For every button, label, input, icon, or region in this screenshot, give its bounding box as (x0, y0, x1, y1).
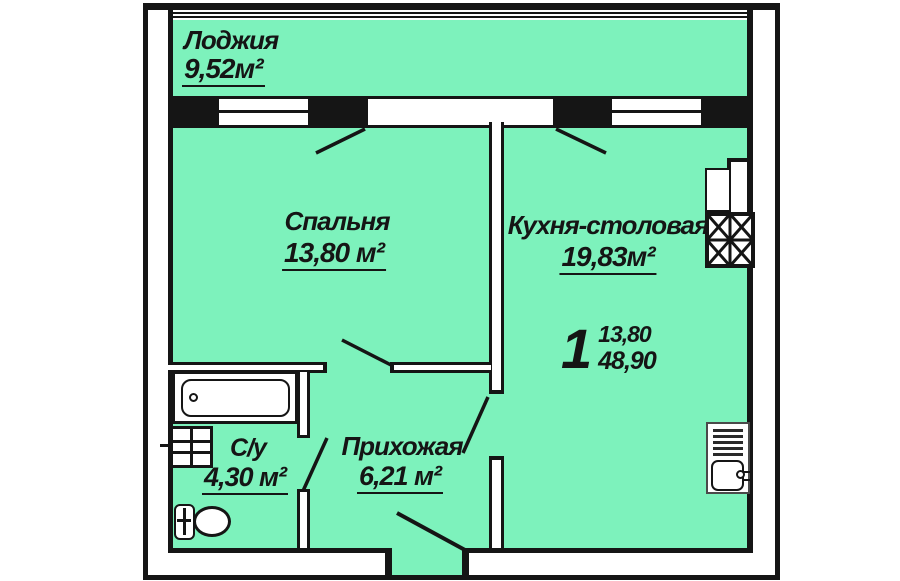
floor-plan: Лоджия 9,52м² Спальня 13,80 м² Кухня-сто… (0, 0, 900, 581)
apartment-stamp: 1 13,80 48,90 (561, 321, 656, 376)
wall-bathroom-right-lower (297, 489, 310, 549)
balcony-door-window (365, 96, 556, 128)
glazing-line (173, 16, 747, 18)
room-label-loggia: Лоджия (184, 27, 278, 53)
toilet-icon (193, 506, 231, 537)
room-area-bathroom: 4,30 м² (202, 464, 288, 495)
living-area: 13,80 (598, 321, 656, 347)
total-area: 48,90 (598, 347, 656, 376)
wall-segment (704, 96, 753, 128)
wall-bottom-inner-left (168, 548, 392, 553)
bathtub-icon (172, 371, 298, 424)
entrance-opening-floor (392, 548, 462, 577)
window-sill-line (612, 110, 701, 113)
rooms-count: 1 (561, 322, 592, 375)
wall-end-cap (462, 548, 469, 575)
wall-bathroom-right-upper (297, 372, 310, 438)
wall-end-cap (385, 548, 392, 575)
vent-shaft-icon (705, 212, 755, 268)
wall-bedroom-kitchen (489, 122, 504, 394)
stove-icon (713, 447, 743, 450)
fridge-icon (705, 168, 731, 212)
outer-wall-left-inner (168, 3, 173, 553)
wall-bedroom-hallway (390, 362, 491, 373)
room-label-bedroom: Спальня (284, 208, 389, 234)
room-area-kitchen: 19,83м² (559, 243, 656, 275)
stove-icon (713, 429, 743, 432)
kitchen-unit (706, 422, 750, 494)
wall-segment (556, 96, 609, 128)
room-label-kitchen: Кухня-столовая (508, 212, 709, 238)
outer-wall-bottom-outline (143, 575, 780, 580)
washbasin-pipe (160, 444, 170, 447)
room-area-hallway: 6,21 м² (357, 463, 443, 494)
room-area-loggia: 9,52м² (182, 55, 265, 87)
room-area-bedroom: 13,80 м² (282, 239, 386, 271)
outer-wall-left-outline (143, 3, 148, 580)
window (216, 96, 311, 128)
room-label-hallway: Прихожая (341, 433, 462, 459)
outer-wall-top (143, 3, 780, 10)
wall-hallway-kitchen-lower (489, 456, 504, 553)
wall-bottom-inner-right (462, 548, 753, 553)
loggia-glazing-band (173, 9, 747, 20)
wall-segment (168, 96, 216, 128)
glazing-line (173, 12, 747, 14)
room-label-bathroom: С/у (230, 436, 266, 461)
toilet-tank (174, 504, 195, 540)
window (609, 96, 704, 128)
stove-icon (713, 435, 743, 438)
wall-segment (311, 96, 365, 128)
outer-wall-right-outline (775, 3, 780, 580)
wall-niche (731, 162, 747, 214)
bathtub-drain (189, 393, 198, 402)
stove-icon (713, 441, 743, 444)
stove-icon (713, 453, 743, 456)
window-sill-line (219, 110, 308, 113)
